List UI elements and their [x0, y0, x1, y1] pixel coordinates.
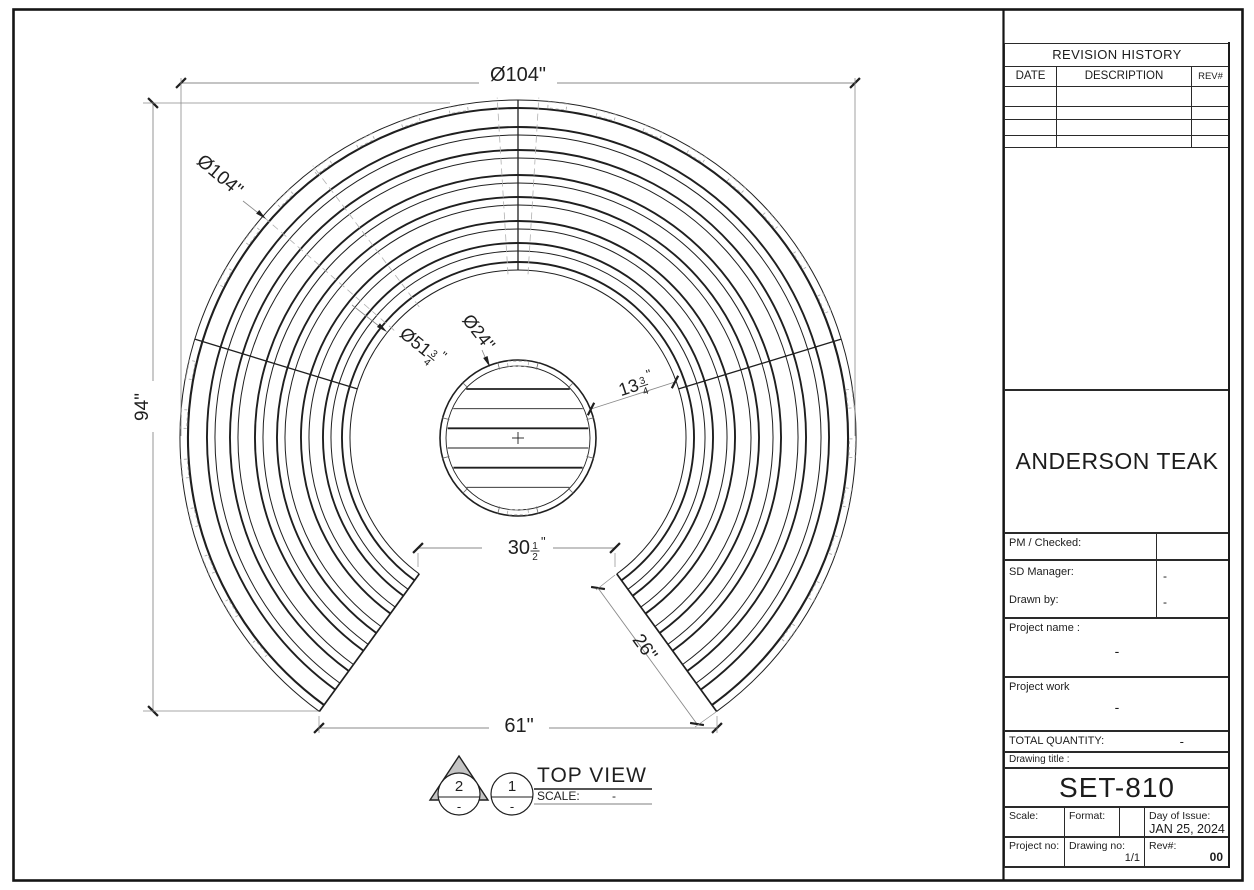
- revision-col-date: DATE: [1005, 67, 1057, 86]
- svg-text:61": 61": [504, 715, 533, 737]
- rev-value: 00: [1210, 850, 1223, 864]
- project-drawing-rev-row: Project no: Drawing no: 1/1 Rev#: 00: [1004, 837, 1230, 868]
- manager-drawn-row: SD Manager: Drawn by: - -: [1004, 560, 1230, 618]
- revision-col-description: DESCRIPTION: [1057, 67, 1192, 86]
- revision-empty-row: [1005, 106, 1229, 119]
- day-of-issue-label: Day of Issue:: [1145, 808, 1229, 822]
- revision-history-title: REVISION HISTORY: [1005, 44, 1229, 66]
- drawn-by-value: -: [1163, 595, 1167, 609]
- drawing-title-value: SET-810: [1059, 772, 1175, 804]
- sd-manager-value: -: [1163, 569, 1167, 583]
- drawing-no-label: Drawing no:: [1065, 838, 1144, 852]
- project-work-value: -: [1005, 699, 1229, 715]
- title-block-right-border: [1228, 42, 1230, 868]
- svg-text:1: 1: [508, 778, 516, 795]
- pm-checked-row: PM / Checked:: [1004, 533, 1230, 560]
- format-cell: Format:: [1065, 808, 1120, 836]
- project-work-label: Project work: [1009, 681, 1070, 693]
- logo-blank-box: [1004, 147, 1230, 390]
- cell-divider: [1156, 561, 1157, 617]
- format-label: Format:: [1065, 808, 1119, 822]
- svg-text:Ø104": Ø104": [192, 151, 246, 201]
- project-name-label: Project name :: [1009, 622, 1080, 634]
- revision-empty-row: [1005, 119, 1229, 135]
- company-name-box: ANDERSON TEAK: [1004, 390, 1230, 533]
- svg-text:-: -: [510, 799, 514, 814]
- total-quantity-row: TOTAL QUANTITY: -: [1004, 731, 1230, 752]
- drawn-by-label: Drawn by:: [1009, 594, 1059, 606]
- svg-text:4: 4: [641, 386, 650, 398]
- total-quantity-value: -: [1180, 734, 1184, 749]
- scale-label: Scale:: [1005, 808, 1064, 822]
- spare-cell: [1120, 808, 1145, 836]
- drawing-title-box: SET-810: [1004, 768, 1230, 807]
- cell-divider: [1156, 534, 1157, 559]
- svg-text:13: 13: [616, 375, 641, 400]
- drawing-title-row: Drawing title :: [1004, 752, 1230, 768]
- svg-text:": ": [644, 366, 653, 382]
- svg-text:-: -: [612, 789, 616, 803]
- svg-text:94": 94": [132, 393, 153, 421]
- svg-text:1: 1: [532, 541, 538, 552]
- svg-text:-: -: [457, 799, 461, 814]
- drawing-title-label: Drawing title :: [1009, 754, 1070, 765]
- project-work-box: Project work -: [1004, 677, 1230, 731]
- svg-text:30: 30: [508, 537, 530, 559]
- scale-cell: Scale:: [1005, 808, 1065, 836]
- pm-checked-label: PM / Checked:: [1009, 537, 1081, 549]
- company-name: ANDERSON TEAK: [1016, 448, 1219, 475]
- project-name-value: -: [1005, 643, 1229, 659]
- project-name-box: Project name : -: [1004, 618, 1230, 677]
- revision-col-rev: REV#: [1192, 67, 1229, 86]
- drawing-sheet: Ø104"94"Ø104"Ø24"Ø5134"1334"3012"26"61"2…: [0, 0, 1254, 890]
- revision-history-table: REVISION HISTORY DATE DESCRIPTION REV#: [1004, 43, 1230, 148]
- svg-text:": ": [541, 534, 546, 549]
- sd-manager-label: SD Manager:: [1009, 566, 1074, 578]
- scale-format-issue-row: Scale: Format: Day of Issue: JAN 25, 202…: [1004, 807, 1230, 837]
- svg-text:Ø104": Ø104": [490, 64, 546, 86]
- rev-cell: Rev#: 00: [1145, 838, 1229, 866]
- day-of-issue-value: JAN 25, 2024: [1145, 822, 1229, 836]
- day-of-issue-cell: Day of Issue: JAN 25, 2024: [1145, 808, 1229, 836]
- svg-text:2: 2: [532, 552, 538, 563]
- drawing-no-value: 1/1: [1125, 852, 1140, 864]
- svg-text:2: 2: [455, 778, 463, 795]
- total-quantity-label: TOTAL QUANTITY:: [1009, 735, 1104, 747]
- svg-text:TOP VIEW: TOP VIEW: [537, 764, 647, 787]
- svg-text:Ø24": Ø24": [458, 310, 499, 354]
- project-no-cell: Project no:: [1005, 838, 1065, 866]
- svg-text:SCALE:: SCALE:: [537, 789, 580, 803]
- project-no-label: Project no:: [1005, 838, 1064, 852]
- drawing-no-cell: Drawing no: 1/1: [1065, 838, 1145, 866]
- revision-empty-row: [1005, 86, 1229, 106]
